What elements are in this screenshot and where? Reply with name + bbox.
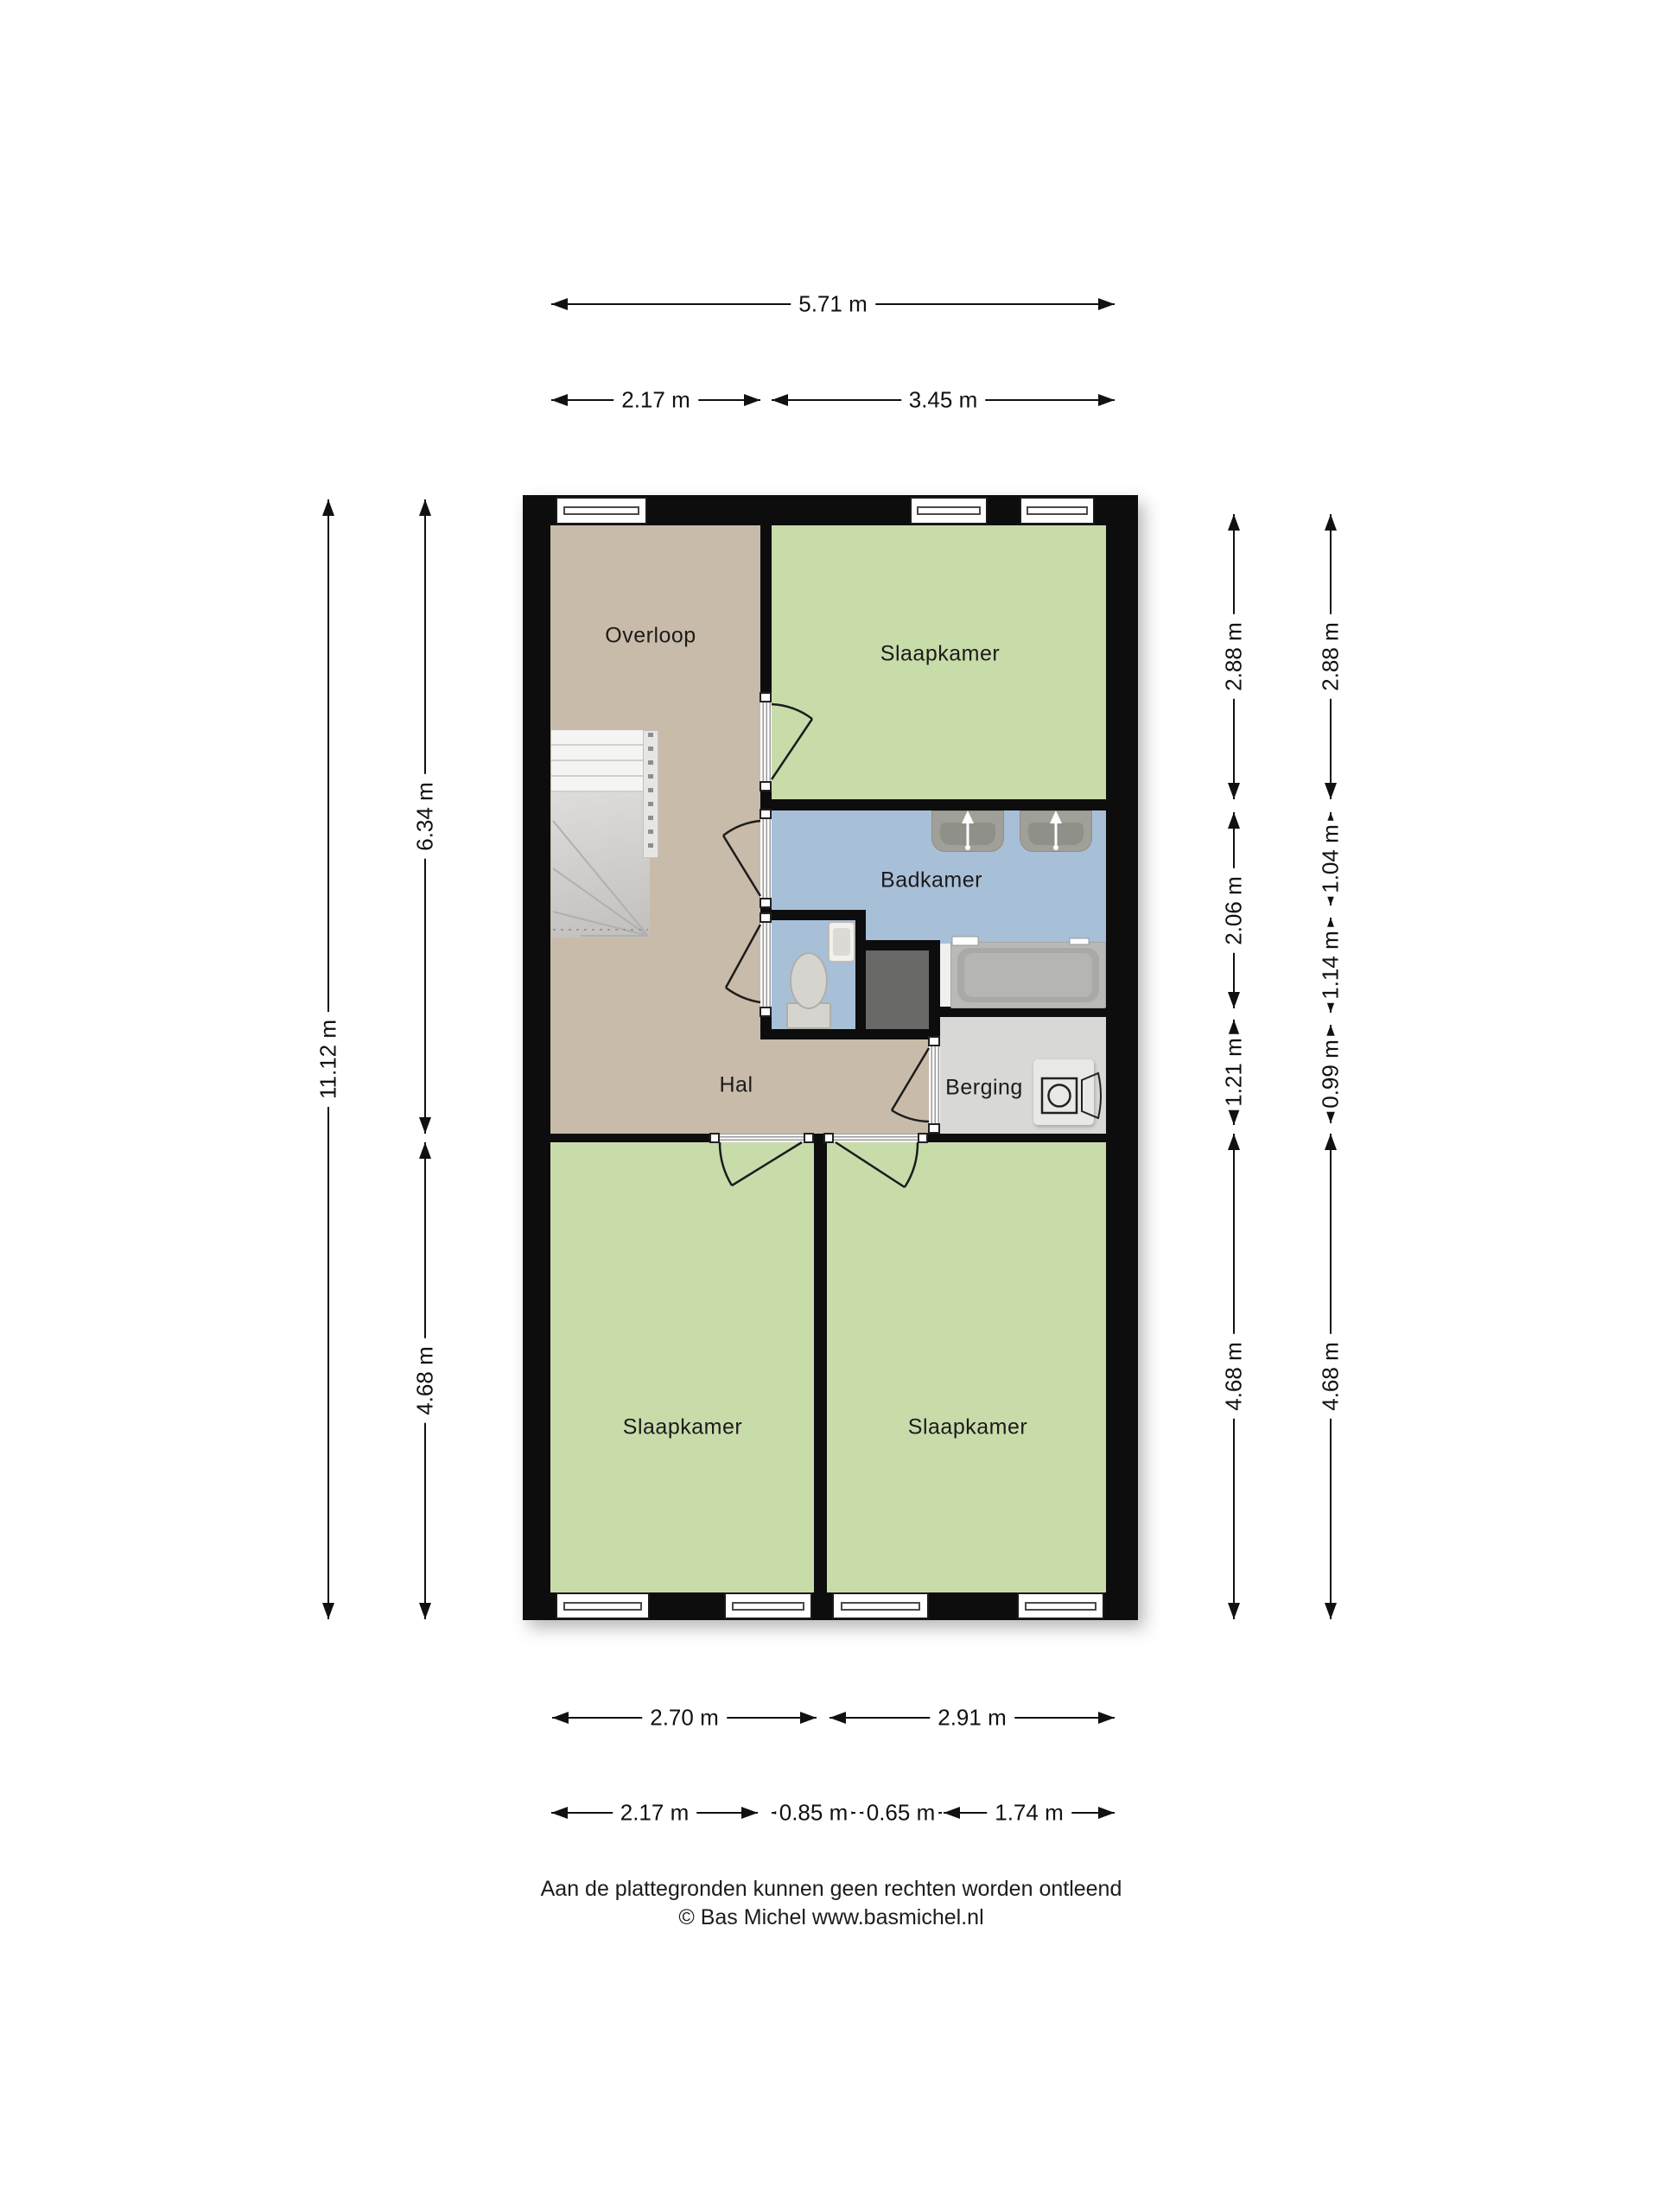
- room-floor-slaapkamer-top: [772, 525, 1106, 810]
- window-glazing: [917, 506, 981, 515]
- sink-basin: [1028, 823, 1084, 845]
- washing-machine-body: [1033, 1059, 1094, 1125]
- window-glazing: [841, 1602, 921, 1611]
- door-opening-berging: [929, 1046, 940, 1123]
- window-icon: [910, 497, 988, 524]
- footer-disclaimer: Aan de plattegronden kunnen geen rechten…: [313, 1877, 1350, 1902]
- door-opening-slaapkamer-left: [720, 1134, 804, 1142]
- shaft: [866, 950, 929, 1029]
- wall-bedroom-bath: [772, 799, 1106, 810]
- door-opening-slaapkamer-top: [760, 702, 772, 781]
- window-glazing: [732, 1602, 804, 1611]
- room-label-hal: Hal: [719, 1073, 753, 1098]
- footer-credit: © Bas Michel www.basmichel.nl: [313, 1905, 1350, 1930]
- bath-tub-inner: [964, 953, 1092, 997]
- room-label-slaapkamer-right: Slaapkamer: [908, 1415, 1027, 1440]
- door-opening-badkamer: [760, 819, 772, 898]
- room-label-overloop: Overloop: [605, 624, 696, 649]
- toilet-icon: [790, 952, 828, 1009]
- window-icon: [556, 1592, 650, 1619]
- wall-toilet-top: [772, 910, 866, 920]
- room-label-berging: Berging: [945, 1076, 1023, 1101]
- window-icon: [556, 497, 647, 524]
- door-opening-toilet: [760, 923, 772, 1007]
- window-icon: [724, 1592, 812, 1619]
- sink-basin: [940, 823, 995, 845]
- window-glazing: [563, 1602, 641, 1611]
- room-floor-slaapkamer-right: [827, 1134, 1106, 1592]
- room-label-slaapkamer-top: Slaapkamer: [880, 642, 1000, 667]
- room-floor-slaapkamer-left: [550, 1134, 814, 1592]
- window-icon: [1020, 497, 1095, 524]
- stair-winder: [551, 792, 650, 938]
- room-label-slaapkamer-left: Slaapkamer: [623, 1415, 742, 1440]
- window-icon: [1017, 1592, 1104, 1619]
- window-glazing: [1025, 1602, 1096, 1611]
- window-glazing: [563, 506, 639, 515]
- room-label-badkamer: Badkamer: [880, 868, 982, 893]
- stair-railing: [643, 730, 658, 858]
- door-opening-slaapkamer-right: [834, 1134, 918, 1142]
- corner-sink-basin: [833, 928, 850, 956]
- wall-bedroom-divider: [814, 1142, 827, 1592]
- wall-toilet-right: [855, 910, 866, 1039]
- wall-toilet-bottom: [772, 1029, 940, 1039]
- window-icon: [832, 1592, 929, 1619]
- window-glazing: [1027, 506, 1088, 515]
- floorplan-page: Overloop Slaapkamer Badkamer Hal Berging…: [0, 0, 1659, 2212]
